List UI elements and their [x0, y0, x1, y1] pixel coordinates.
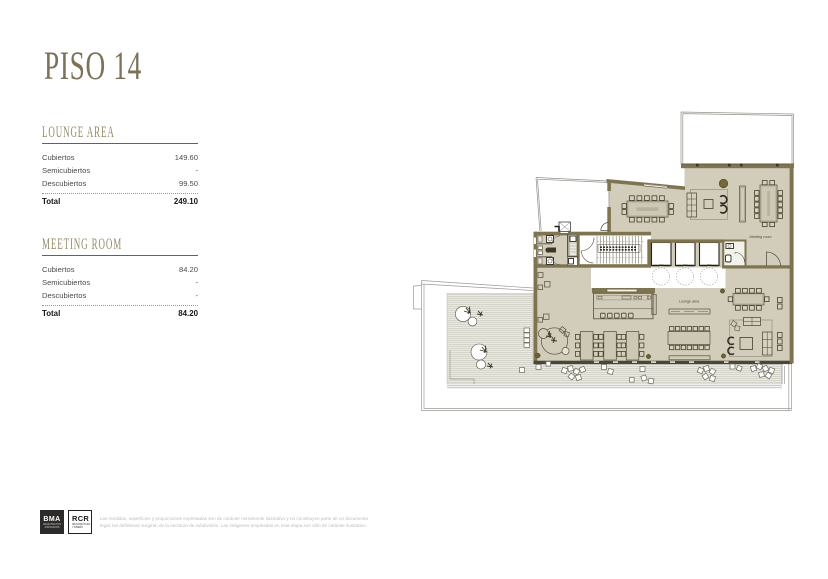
- svg-text:Meeting room: Meeting room: [750, 235, 772, 239]
- svg-text:Lounge area: Lounge area: [679, 300, 699, 304]
